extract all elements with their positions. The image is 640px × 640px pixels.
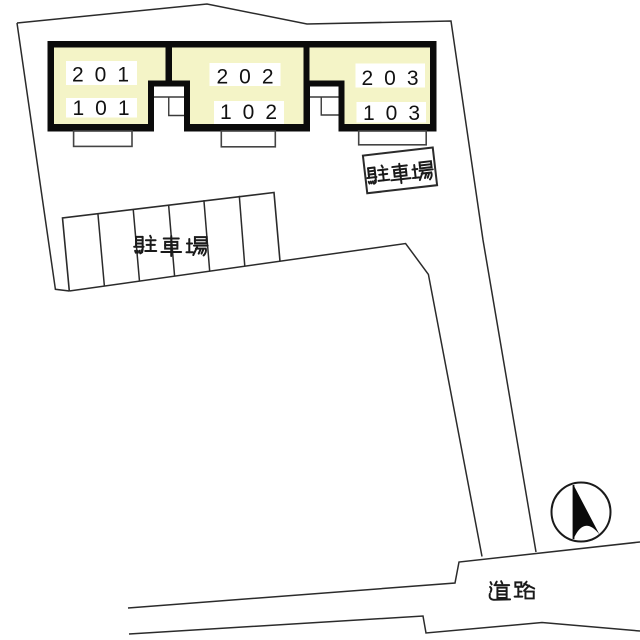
svg-text:201: 201: [72, 64, 140, 87]
svg-text:203: 203: [362, 67, 430, 90]
svg-text:102: 102: [220, 101, 288, 124]
svg-text:101: 101: [73, 97, 141, 120]
svg-text:202: 202: [217, 66, 285, 89]
svg-text:103: 103: [363, 102, 431, 125]
